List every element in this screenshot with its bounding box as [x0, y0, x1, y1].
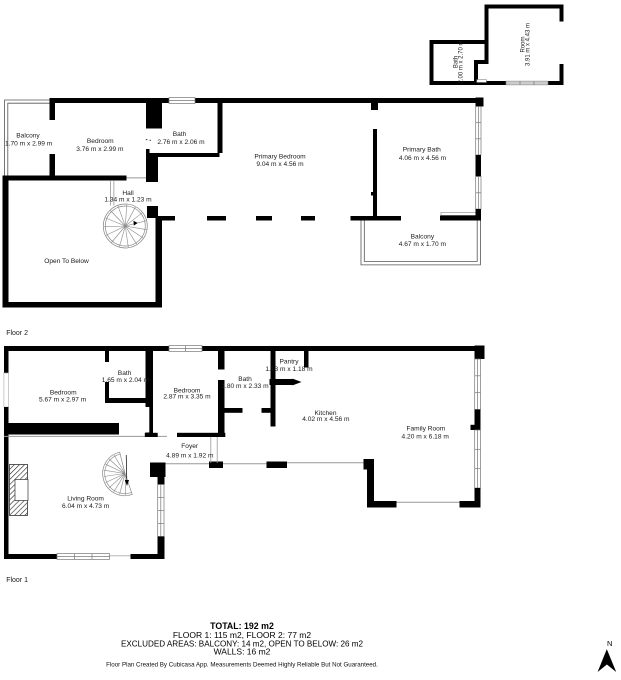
svg-text:3.76 m x 2.99 m: 3.76 m x 2.99 m [76, 146, 124, 153]
svg-text:WALLS: 16 m2: WALLS: 16 m2 [214, 647, 271, 657]
svg-text:Bedroom: Bedroom [50, 389, 77, 396]
svg-text:Floor 2: Floor 2 [6, 330, 28, 337]
svg-text:5.67 m x 2.97 m: 5.67 m x 2.97 m [39, 397, 87, 404]
svg-text:Living Room: Living Room [67, 495, 104, 502]
svg-text:Bath: Bath [238, 376, 252, 383]
svg-text:6.04 m x 4.73 m: 6.04 m x 4.73 m [62, 503, 110, 510]
svg-text:4.20 m x 6.18 m: 4.20 m x 6.18 m [402, 434, 450, 441]
svg-text:Bath: Bath [173, 131, 187, 138]
svg-text:Foyer: Foyer [181, 443, 199, 450]
svg-text:4.67 m x 1.70 m: 4.67 m x 1.70 m [399, 241, 447, 248]
svg-text:Balcony: Balcony [16, 132, 40, 139]
svg-text:1.13 m x 1.18 m: 1.13 m x 1.18 m [265, 366, 313, 373]
svg-text:Open To Below: Open To Below [44, 258, 89, 265]
svg-text:1.65 m x 2.04 m: 1.65 m x 2.04 m [102, 377, 150, 384]
svg-text:4.06 m x 4.56 m: 4.06 m x 4.56 m [399, 155, 447, 162]
svg-text:1.34 m x 1.23 m: 1.34 m x 1.23 m [104, 197, 152, 204]
svg-text:1.80 m x 2.33 m: 1.80 m x 2.33 m [221, 383, 269, 390]
svg-text:1.70 m x 2.99 m: 1.70 m x 2.99 m [5, 141, 53, 148]
svg-text:Family Room: Family Room [406, 426, 445, 433]
svg-text:4.89 m x 1.92 m: 4.89 m x 1.92 m [166, 453, 214, 460]
svg-text:4.02 m x 4.56 m: 4.02 m x 4.56 m [302, 416, 350, 423]
svg-text:Bedroom: Bedroom [87, 138, 114, 145]
svg-text:2.76 m x 2.06 m: 2.76 m x 2.06 m [157, 139, 205, 146]
svg-text:Primary Bedroom: Primary Bedroom [254, 153, 306, 160]
svg-text:2.00 m x 2.70 m: 2.00 m x 2.70 m [458, 40, 464, 83]
svg-text:Pantry: Pantry [279, 359, 299, 366]
svg-text:Floor 1: Floor 1 [6, 577, 28, 584]
svg-text:9.04 m x 4.56 m: 9.04 m x 4.56 m [256, 161, 304, 168]
svg-text:3.91 m x 4.43 m: 3.91 m x 4.43 m [526, 23, 532, 66]
svg-text:Floor Plan Created By Cubicasa: Floor Plan Created By Cubicasa App. Meas… [106, 661, 378, 668]
svg-text:Balcony: Balcony [411, 234, 435, 241]
svg-text:2.87 m x 3.35 m: 2.87 m x 3.35 m [163, 394, 211, 401]
svg-text:Primary Bath: Primary Bath [403, 147, 441, 154]
svg-text:N: N [607, 639, 612, 648]
